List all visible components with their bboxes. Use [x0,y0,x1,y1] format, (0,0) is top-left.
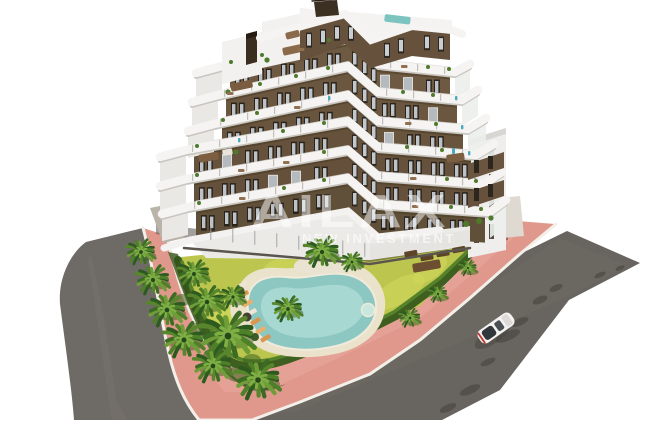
svg-text:AILAX: AILAX [251,186,450,237]
svg-text:NEW INVESTMENT: NEW INVESTMENT [302,231,456,246]
